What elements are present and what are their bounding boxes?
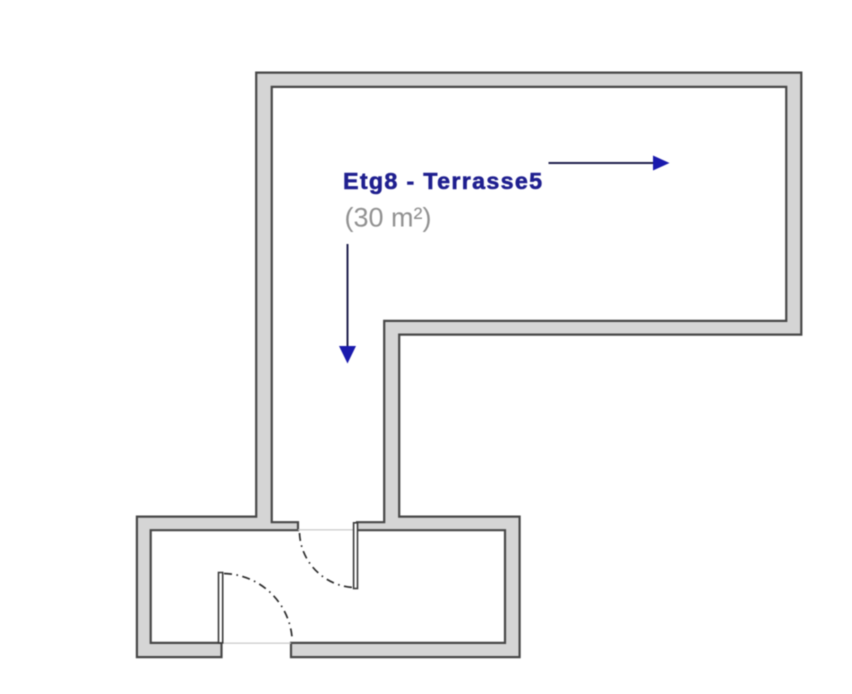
- svg-text:(30 m²): (30 m²): [345, 203, 432, 233]
- svg-text:Etg8 - Terrasse5: Etg8 - Terrasse5: [343, 168, 543, 194]
